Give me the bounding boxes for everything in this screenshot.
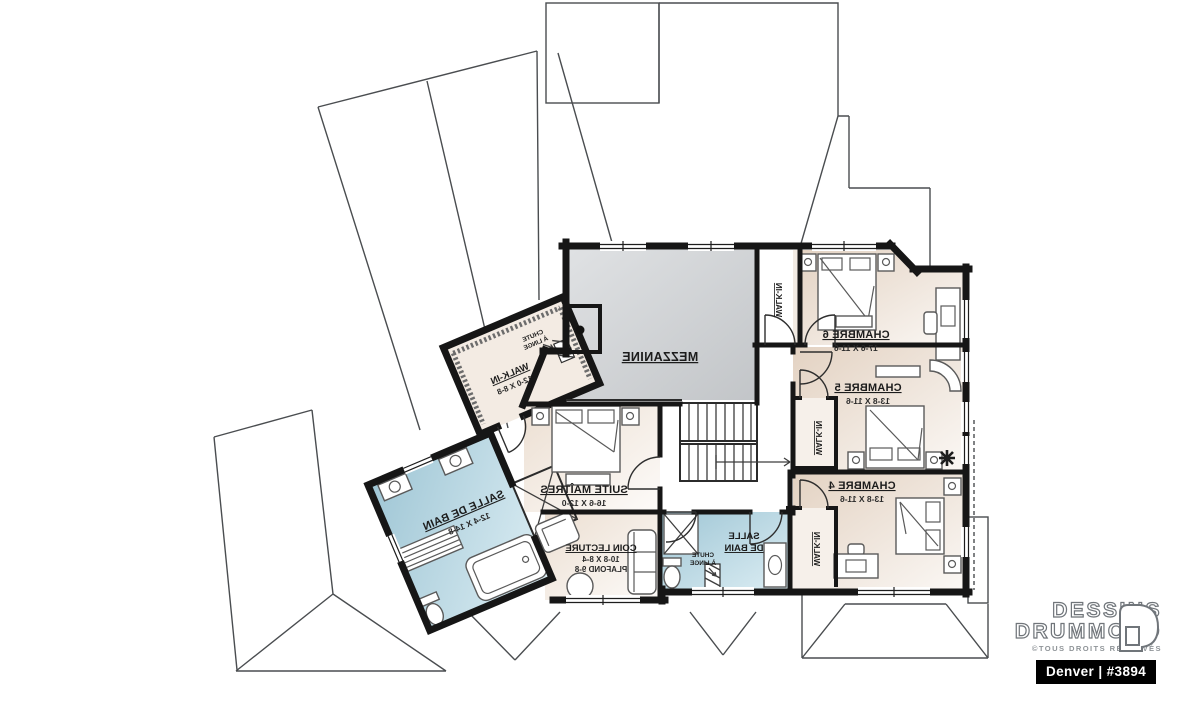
window: [961, 352, 971, 382]
walkin6-label: WALK-IN: [774, 283, 783, 317]
model-number-bar: Denver | #3894: [1036, 660, 1156, 684]
window: [961, 402, 971, 432]
chambre5-label: CHAMBRE 5: [834, 382, 901, 394]
toilet-icon: [663, 558, 681, 588]
drummond-logo-icon: [1114, 601, 1160, 653]
window: [961, 436, 971, 464]
window: [961, 527, 971, 557]
suite-label: SUITE MAÎTRES: [540, 483, 628, 496]
vanity-sink-icon: [764, 543, 786, 587]
window: [688, 241, 734, 251]
lecture-ceiling: PLAFOND 9-8: [574, 565, 627, 574]
corridor-floor: [757, 246, 793, 480]
chute-label-line1: CHUTE: [691, 552, 714, 559]
window: [692, 587, 754, 597]
window: [858, 587, 930, 597]
small-bath-label-line1: SALLE: [728, 531, 759, 542]
walkin4-label: WALK-IN: [812, 532, 821, 566]
chute-label-line2: À LINGE: [689, 558, 716, 567]
chambre6-label: CHAMBRE 6: [822, 329, 889, 341]
lecture-dims: 10-8 X 8-4: [582, 555, 620, 564]
floor-plan-page: SALLE DE BAIN 12-4 X 14-8 WALK-IN 12-0 X…: [0, 0, 1200, 711]
small-bath-label-line2: DE BAIN: [724, 543, 763, 554]
plant-icon: [939, 450, 955, 466]
window: [812, 241, 876, 251]
chambre6-dims: 17-6 X 11-6: [834, 343, 878, 353]
chambre5-dims: 13-8 X 11-6: [846, 396, 890, 406]
window: [566, 595, 640, 605]
bench-icon: [876, 366, 920, 377]
hall-floor: [660, 478, 793, 512]
window: [961, 300, 971, 338]
mezzanine-label: MEZZANINE: [622, 350, 699, 364]
chambre4-label: CHAMBRE 4: [828, 480, 896, 492]
window: [600, 241, 646, 251]
walkin5-label: WALK-IN: [814, 421, 823, 455]
walkin4-floor: [788, 508, 836, 591]
chambre4-dims: 13-8 X 11-6: [840, 494, 884, 504]
shower-icon: [664, 514, 698, 554]
suite-dims: 16-6 X 12-0: [562, 498, 607, 508]
sofa-icon: [628, 530, 656, 594]
lecture-label: COIN LECTURE: [565, 543, 636, 554]
